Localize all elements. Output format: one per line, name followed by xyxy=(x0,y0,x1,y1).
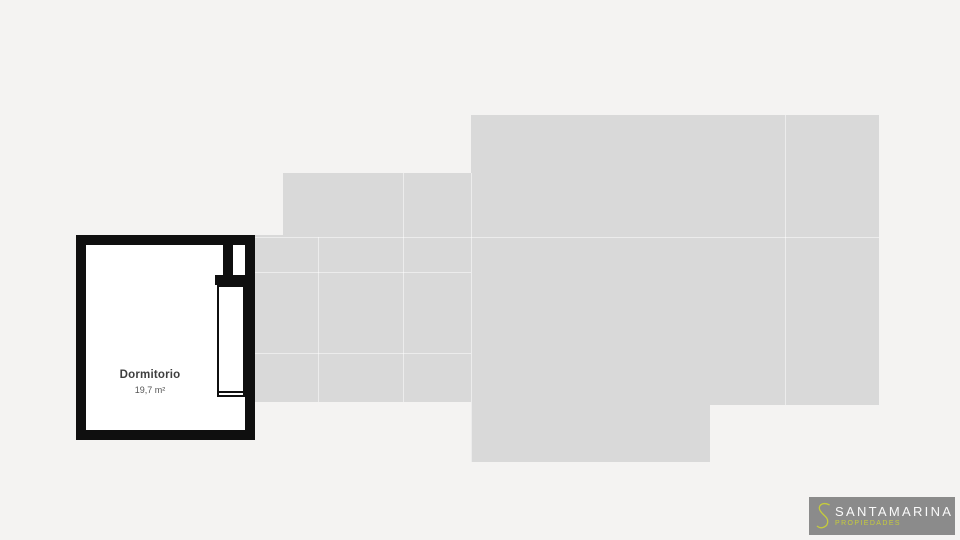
room-label: Dormitorio xyxy=(90,369,210,381)
niche-bottom-wall xyxy=(215,275,245,285)
faint-partition-line xyxy=(403,173,404,402)
faint-partition-line xyxy=(785,115,786,405)
closet-bottom-double-line xyxy=(219,391,243,393)
faint-partition-line xyxy=(255,272,471,273)
brand-text-block: SANTAMARINA PROPIEDADES xyxy=(835,505,953,528)
faint-partition-line xyxy=(471,173,472,462)
greyed-plan-block-upper-middle xyxy=(283,173,471,237)
closet-wardrobe xyxy=(217,285,245,397)
greyed-plan-block-bottom-middle xyxy=(471,402,710,462)
greyed-plan-block-left-middle xyxy=(255,235,471,402)
brand-logo: SANTAMARINA PROPIEDADES xyxy=(809,497,955,535)
faint-partition-line xyxy=(255,353,471,354)
faint-partition-line xyxy=(318,237,319,402)
niche-left-wall xyxy=(223,245,233,277)
floorplan-page: Dormitorio 19,7 m² SANTAMARINA PROPIEDAD… xyxy=(0,0,960,540)
brand-name: SANTAMARINA xyxy=(835,505,953,519)
room-area-value: 19,7 m² xyxy=(90,385,210,395)
greyed-plan-block-top-right xyxy=(471,115,879,405)
brand-tagline: PROPIEDADES xyxy=(835,520,953,528)
brand-monogram-s-icon xyxy=(815,501,832,531)
